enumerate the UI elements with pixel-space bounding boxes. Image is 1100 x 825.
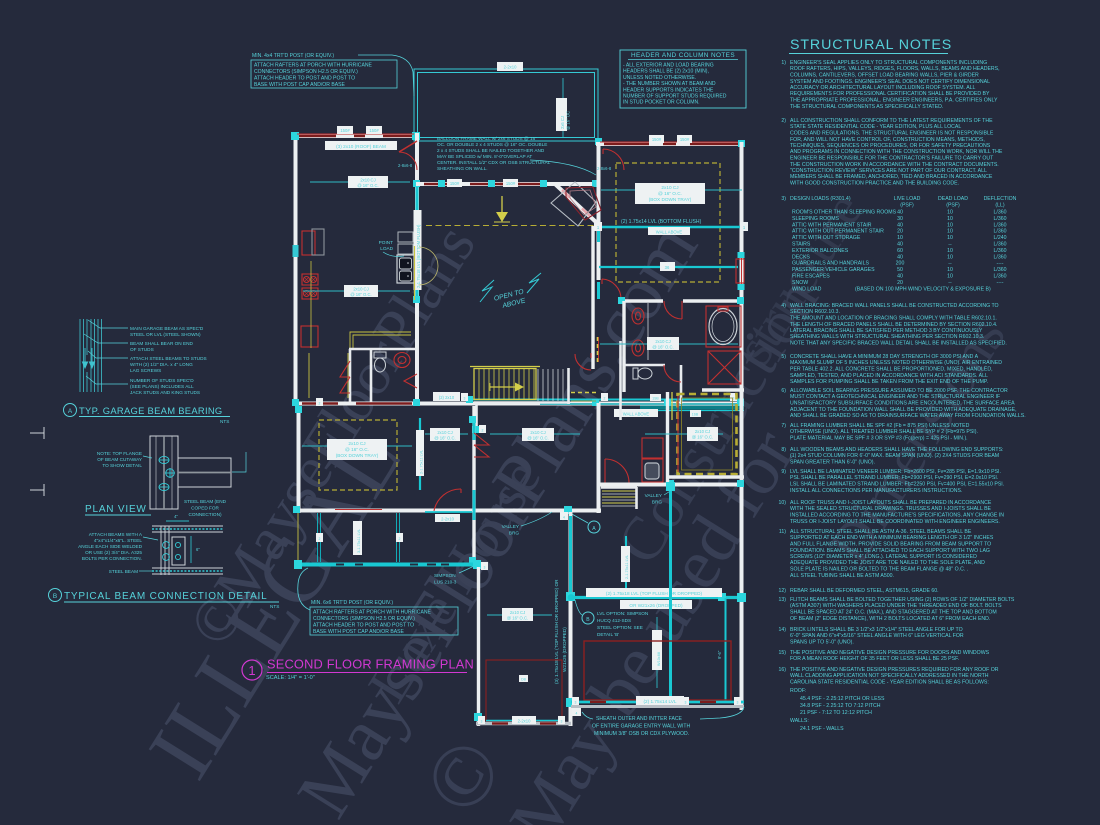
svg-text:L/360: L/360: [994, 254, 1007, 260]
svg-text:150#: 150#: [680, 137, 690, 142]
svg-text:SAMPLES FOR PUMPING SHALL BE T: SAMPLES FOR PUMPING SHALL BE TAKEN FROM …: [790, 379, 988, 385]
svg-text:15): 15): [779, 650, 787, 656]
svg-text:2): 2): [781, 118, 786, 124]
svg-text:ADJACENT TO THE FOUNDATION WAL: ADJACENT TO THE FOUNDATION WALL SHALL BE…: [790, 407, 1017, 413]
svg-text:@ 16" O.C.: @ 16" O.C.: [527, 436, 548, 441]
svg-text:THE STRUCTURAL COMPONENTS AS S: THE STRUCTURAL COMPONENTS AS SPECIFICALL…: [790, 104, 943, 110]
svg-text:STEEL BEAM (END: STEEL BEAM (END: [184, 499, 227, 504]
svg-text:ALL FRAMING LUMBER SHALL BE SP: ALL FRAMING LUMBER SHALL BE SPF #2 (Fb =…: [790, 423, 970, 429]
svg-text:2x10 CJ: 2x10 CJ: [661, 185, 678, 190]
svg-text:@ 16" O.C.: @ 16" O.C.: [434, 436, 455, 441]
svg-text:(2) 1.75x18 LVL (TOP FLUSH OR: (2) 1.75x18 LVL (TOP FLUSH OR DROPPED): [606, 591, 703, 596]
svg-text:(2) 1.75x14 LVL (BOTTOM FLUSH): (2) 1.75x14 LVL (BOTTOM FLUSH): [621, 219, 702, 225]
svg-text:14): 14): [779, 627, 787, 633]
svg-text:@ 16" O.C.: @ 16" O.C.: [692, 435, 713, 440]
svg-text:CENTER. INSTALL 1/2" CDX OR OS: CENTER. INSTALL 1/2" CDX OR OSB STRUCTUR…: [437, 160, 551, 165]
svg-text:ALLOWABLE SOIL BEARING PRESSUR: ALLOWABLE SOIL BEARING PRESSURE ASSUMED …: [790, 388, 1008, 394]
svg-text:L/360: L/360: [994, 248, 1007, 254]
svg-text:B: B: [53, 593, 57, 600]
svg-text:SCALE: 1/4" = 1'-0": SCALE: 1/4" = 1'-0": [266, 675, 315, 681]
svg-text:AND PROGRAMS IN CONNECTION WIT: AND PROGRAMS IN CONNECTION WITH THE CONS…: [790, 149, 1003, 155]
svg-text:ALL ROOF TRUSS AND I-JOIST LAY: ALL ROOF TRUSS AND I-JOIST LAYOUTS SHALL…: [790, 500, 992, 506]
svg-text:ALL STRUCTURAL STEEL SHALL BE: ALL STRUCTURAL STEEL SHALL BE ASTM A-36.…: [790, 529, 972, 535]
svg-text:2-1.75x11 LVL: 2-1.75x11 LVL: [420, 450, 424, 474]
svg-text:ATTACH RAFTERS AT PORCH WITH H: ATTACH RAFTERS AT PORCH WITH HURRICANE: [313, 610, 432, 616]
svg-text:L/360: L/360: [994, 274, 1007, 280]
svg-text:SHALL BE SPACED AT 24" O.C. (M: SHALL BE SPACED AT 24" O.C. (MAX.), AND …: [790, 610, 997, 616]
svg-text:MINIMUM 3/8" OSB OR CDX PLYWOO: MINIMUM 3/8" OSB OR CDX PLYWOOD.: [594, 731, 689, 737]
svg-text:WIND LOAD: WIND LOAD: [792, 286, 822, 292]
svg-text:45.4 PSF - 2.25:12 PITCH OR LE: 45.4 PSF - 2.25:12 PITCH OR LESS: [800, 696, 885, 702]
svg-text:ATTACH HEADER TO POST AND POST: ATTACH HEADER TO POST AND POST TO: [254, 76, 355, 82]
svg-text:SECTION R602.10.3.: SECTION R602.10.3.: [790, 309, 840, 315]
svg-text:(3) 2x10 (ROOF) BEAM: (3) 2x10 (ROOF) BEAM: [336, 144, 386, 149]
svg-text:(BASED ON 100 MPH WIND VELOCIT: (BASED ON 100 MPH WIND VELOCITY & EXPOSU…: [855, 286, 991, 292]
svg-text:2: 2: [319, 401, 321, 405]
svg-text:FLITCH BEAMS SHALL BE BOLTED T: FLITCH BEAMS SHALL BE BOLTED TOGETHER US…: [790, 597, 1015, 603]
svg-text:STATE STATE RESIDENTIAL CODE -: STATE STATE RESIDENTIAL CODE - YEAR EDIT…: [790, 124, 961, 130]
svg-text:@ 16" O.C.: @ 16" O.C.: [345, 447, 369, 452]
svg-text:BASE WITH POST CAP AND/OR BASE: BASE WITH POST CAP AND/OR BASE: [254, 82, 346, 88]
svg-text:150#: 150#: [369, 128, 379, 133]
svg-text:L/240: L/240: [994, 235, 1007, 241]
svg-text:2-2x10: 2-2x10: [518, 718, 531, 723]
svg-text:A: A: [68, 408, 73, 415]
svg-text:L/360: L/360: [994, 267, 1007, 273]
svg-text:ROOF RAFTERS, HIPS, VALLEYS, R: ROOF RAFTERS, HIPS, VALLEYS, RIDGES, FLO…: [790, 66, 1000, 72]
svg-text:VALLEY: VALLEY: [502, 524, 520, 529]
svg-text:SOLE PLATE IS NAILED OR BOLTED: SOLE PLATE IS NAILED OR BOLTED TO THE BE…: [790, 567, 968, 573]
svg-text:3-1.75x11 LVL: 3-1.75x11 LVL: [357, 529, 361, 553]
svg-text:150#: 150#: [340, 128, 350, 133]
svg-text:3: 3: [561, 719, 563, 723]
svg-text:3: 3: [575, 700, 577, 704]
svg-text:10: 10: [947, 267, 953, 273]
svg-text:ATTACH RAFTERS AT PORCH WITH H: ATTACH RAFTERS AT PORCH WITH HURRICANE: [254, 63, 373, 69]
svg-text:----: ----: [997, 261, 1004, 267]
svg-text:SHEATHING WALLS WITH STRUCTURA: SHEATHING WALLS WITH STRUCTURAL SHEATHIN…: [790, 334, 984, 340]
svg-text:24.1 PSF - WALLS: 24.1 PSF - WALLS: [800, 726, 844, 732]
svg-text:WALL BRACING: BRACED WALL PAN: WALL BRACING: BRACED WALL PANELS SHALL B…: [790, 303, 999, 309]
svg-text:MAIN GARAGE BEAM AS SPEC'D: MAIN GARAGE BEAM AS SPEC'D: [130, 326, 204, 331]
svg-text:STRUCTURAL NOTES: STRUCTURAL NOTES: [790, 37, 952, 53]
svg-text:4: 4: [563, 516, 565, 520]
svg-text:2x6 CJ: 2x6 CJ: [560, 116, 565, 129]
svg-text:SAMPLED, TESTED, AND PLACED IN: SAMPLED, TESTED, AND PLACED IN ACCORDANC…: [790, 373, 988, 379]
svg-text:THE APPROPRIATE PROFESSIONAL.: THE APPROPRIATE PROFESSIONAL. ENGINEER E…: [790, 98, 998, 104]
svg-text:2-2x10: 2-2x10: [441, 516, 454, 521]
svg-text:--: --: [948, 261, 952, 267]
svg-text:ENGINEER BE RESPONSIBLE FOR TH: ENGINEER BE RESPONSIBLE FOR THE CONTRACT…: [790, 156, 994, 162]
svg-text:DEFLECTION: DEFLECTION: [984, 196, 1017, 202]
svg-text:IN STUD POCKET OR COLUMN.: IN STUD POCKET OR COLUMN.: [623, 100, 700, 106]
svg-text:ATTIC WITH OUT PERMANENT STAIR: ATTIC WITH OUT PERMANENT STAIR: [792, 229, 884, 235]
svg-text:--: --: [948, 280, 952, 286]
svg-text:(PSF): (PSF): [900, 202, 914, 208]
svg-text:L/360: L/360: [994, 216, 1007, 222]
svg-text:ALL WOODEN BEAMS AND HEADERS S: ALL WOODEN BEAMS AND HEADERS SHALL HAVE …: [790, 447, 1004, 453]
svg-text:L/360: L/360: [994, 222, 1007, 228]
svg-text:3: 3: [685, 700, 687, 704]
svg-text:2x10 CJ: 2x10 CJ: [437, 430, 452, 435]
svg-text:2x10 CJ: 2x10 CJ: [510, 610, 525, 615]
svg-text:NOTE: TOP FLANGE: NOTE: TOP FLANGE: [97, 451, 142, 456]
svg-text:(3) 1.75x18 LVL (TOP FLUSH OR: (3) 1.75x18 LVL (TOP FLUSH OR DROPPED) O…: [554, 579, 559, 684]
svg-text:TYP. GARAGE BEAM BEARING: TYP. GARAGE BEAM BEARING: [79, 405, 223, 416]
svg-text:TYPICAL BEAM CONNECTION DETAIL: TYPICAL BEAM CONNECTION DETAIL: [64, 591, 267, 602]
svg-text:SUPPORTED AT EACH END WITH A M: SUPPORTED AT EACH END WITH A MINIMUM BEA…: [790, 535, 994, 541]
svg-text:ROOM'S OTHER THAN SLEEPING ROO: ROOM'S OTHER THAN SLEEPING ROOMS: [792, 210, 897, 216]
svg-text:- THE NUMBER SHOWN AT BEAM AND: - THE NUMBER SHOWN AT BEAM AND: [623, 81, 716, 87]
svg-text:ENGINEER'S SEAL APPLIES ONLY T: ENGINEER'S SEAL APPLIES ONLY TO STRUCTUR…: [790, 60, 987, 66]
svg-text:DECKS: DECKS: [792, 254, 810, 260]
svg-text:TRUSS OR I-JOIST LAYOUT SHALL: TRUSS OR I-JOIST LAYOUT SHALL BE COORDIN…: [790, 519, 1000, 525]
svg-text:NTS: NTS: [270, 604, 279, 609]
svg-text:@ 16" O.C.: @ 16" O.C.: [357, 183, 378, 188]
svg-text:OF ENTIRE GARAGE ENTRY WALL WI: OF ENTIRE GARAGE ENTRY WALL WITH: [592, 724, 691, 730]
svg-text:(2) 1.75x14 LVL: (2) 1.75x14 LVL: [643, 699, 676, 704]
svg-text:BRG: BRG: [509, 531, 520, 536]
svg-text:10: 10: [947, 254, 953, 260]
svg-text:(LL): (LL): [995, 202, 1004, 208]
svg-text:DEAD LOAD: DEAD LOAD: [938, 196, 968, 202]
svg-text:3: 3: [737, 700, 739, 704]
svg-text:WITH (2) 1/2" DIA. x 4" LONG: WITH (2) 1/2" DIA. x 4" LONG: [130, 362, 193, 367]
svg-text:PSL SHALL BE PARALLEL STRAND: PSL SHALL BE PARALLEL STRAND LUMBER: Fb=…: [790, 475, 998, 481]
svg-text:3): 3): [781, 196, 786, 202]
svg-text:LVL SHALL BE LAMINATED VENEER: LVL SHALL BE LAMINATED VENEER LUMBER: Fb…: [790, 469, 1001, 475]
svg-text:BOLTS PER CONNECTION.: BOLTS PER CONNECTION.: [82, 556, 142, 561]
svg-text:1): 1): [781, 60, 786, 66]
svg-text:150#: 150#: [450, 181, 460, 186]
svg-text:30: 30: [897, 216, 903, 222]
svg-text:PLAN VIEW: PLAN VIEW: [85, 504, 147, 515]
svg-text:2x10 CJ: 2x10 CJ: [360, 178, 375, 183]
svg-text:CODES AND REGULATIONS. THE STR: CODES AND REGULATIONS. THE STRUCTURAL EN…: [790, 131, 994, 137]
svg-text:HEADER AND COLUMN NOTES: HEADER AND COLUMN NOTES: [631, 52, 735, 59]
svg-text:SNOW: SNOW: [792, 280, 808, 286]
svg-text:40: 40: [897, 254, 903, 260]
svg-text:@ 16" O.C.: @ 16" O.C.: [652, 345, 673, 350]
svg-text:ATTACH HEADER TO POST AND POST: ATTACH HEADER TO POST AND POST TO: [313, 623, 414, 629]
svg-text:10): 10): [779, 500, 787, 506]
svg-text:LSL SHALL BE LAMINATED STRAND: LSL SHALL BE LAMINATED STRAND LUMBER: Fb…: [790, 482, 1004, 488]
svg-text:4: 4: [576, 711, 578, 715]
svg-text:MAXIMUM SLUMP OF 5 INCHES UNLE: MAXIMUM SLUMP OF 5 INCHES UNLESS NOTED O…: [790, 360, 1002, 366]
svg-text:OF BEAM (2" EDGE DISTANCE), WI: OF BEAM (2" EDGE DISTANCE), WITH 2 BOLTS…: [790, 616, 990, 622]
svg-text:SECOND FLOOR FRAMING PLAN: SECOND FLOOR FRAMING PLAN: [267, 657, 474, 672]
svg-text:NTS: NTS: [220, 419, 229, 424]
svg-text:1SB: 1SB: [652, 397, 659, 401]
svg-text:OTHERWISE (UNO). ALL TREATED L: OTHERWISE (UNO). ALL TREATED LUMBER SHAL…: [790, 429, 978, 435]
svg-text:(BOX DOWN TRAY): (BOX DOWN TRAY): [336, 453, 379, 458]
svg-text:2x10 CJ: 2x10 CJ: [655, 339, 670, 344]
svg-text:2: 2: [319, 537, 321, 541]
svg-text:1SB: 1SB: [692, 413, 699, 417]
svg-text:2 x 4 STUDS SHALL BE NAILED TO: 2 x 4 STUDS SHALL BE NAILED TOGETHER AND: [437, 148, 545, 153]
svg-text:11): 11): [779, 529, 786, 535]
svg-text:2x10 CJ: 2x10 CJ: [348, 441, 365, 446]
svg-text:MAY BE SPLICED w/ MIN. 8'-0"OV: MAY BE SPLICED w/ MIN. 8'-0"OVERLAP AT: [437, 154, 532, 159]
svg-text:2x10 CJ: 2x10 CJ: [695, 429, 710, 434]
svg-text:MUST CONTACT A GEOTECHNICAL EN: MUST CONTACT A GEOTECHNICAL ENGINEER AND…: [790, 394, 1000, 400]
svg-text:4"x4"x1/4"x6"L. STEEL: 4"x4"x1/4"x6"L. STEEL: [94, 538, 142, 543]
svg-text:(PSF): (PSF): [946, 202, 960, 208]
svg-text:@ 16" OC: @ 16" OC: [566, 111, 571, 130]
svg-text:THE POSITIVE AND NEGATIVE DESI: THE POSITIVE AND NEGATIVE DESIGN PRESSUR…: [790, 650, 990, 656]
svg-text:7): 7): [781, 423, 786, 429]
svg-text:MEMBERS SHALL BE FRAMED, ANCHO: MEMBERS SHALL BE FRAMED, ANCHORED, TIED …: [790, 174, 993, 180]
svg-text:STEEL OR LVL (STEEL SHOWN): STEEL OR LVL (STEEL SHOWN): [130, 332, 201, 337]
svg-text:2x10 CJ: 2x10 CJ: [353, 287, 368, 292]
svg-text:BASE WITH POST CAP AND/OR BASE: BASE WITH POST CAP AND/OR BASE: [313, 629, 405, 635]
svg-text:ADEQUATE PROVIDED THE JOIST AR: ADEQUATE PROVIDED THE JOIST ARE TOE NAIL…: [790, 560, 985, 566]
svg-text:(1) 2x4 STUD COLUMN FOR 6'-0": (1) 2x4 STUD COLUMN FOR 6'-0" MAX. BEAM …: [790, 453, 999, 459]
svg-text:WITH GOOD CONSTRUCTION PRACTIC: WITH GOOD CONSTRUCTION PRACTICE AND THE …: [790, 181, 959, 187]
svg-text:SCREWS (1/2" DIAMETER x 4" LON: SCREWS (1/2" DIAMETER x 4" LONG.). LATER…: [790, 554, 977, 560]
svg-text:----: ----: [997, 280, 1004, 286]
svg-text:DB: DB: [521, 678, 526, 682]
svg-text:2: 2: [399, 537, 401, 541]
svg-text:STEEL OPTION: SEE: STEEL OPTION: SEE: [597, 625, 643, 630]
svg-text:3: 3: [484, 565, 486, 569]
svg-text:2-8x6-8: 2-8x6-8: [398, 163, 413, 168]
svg-text:FOR A MEAN ROOF HEIGHT OF 35 F: FOR A MEAN ROOF HEIGHT OF 35 FEET OR LES…: [790, 656, 959, 662]
svg-text:OC. OR DOUBLE 2 x 4 STUDS @ 16: OC. OR DOUBLE 2 x 4 STUDS @ 16" OC. DOUB…: [437, 142, 547, 147]
svg-text:AND FULL FLANGE WIDTH. PROVIDE: AND FULL FLANGE WIDTH. PROVIDE SOLID BEA…: [790, 542, 991, 548]
svg-text:CONNECTION): CONNECTION): [188, 512, 222, 517]
svg-text:MIN. 6x6 TRT'D POST (OR EQUIV.: MIN. 6x6 TRT'D POST (OR EQUIV.): [311, 600, 393, 606]
svg-text:10: 10: [947, 274, 953, 280]
svg-text:B: B: [586, 617, 590, 623]
svg-text:UNLESS NOTED OTHERWISE.: UNLESS NOTED OTHERWISE.: [623, 75, 696, 81]
svg-text:WALL CLADDING APPLICATION NOT: WALL CLADDING APPLICATION NOT SPECIFICAL…: [790, 673, 989, 679]
svg-text:ACCURACY OR ARCHITECTURAL LAYO: ACCURACY OR ARCHITECTURAL LAYOUT INCLUDI…: [790, 85, 976, 91]
svg-text:BRG: BRG: [652, 500, 663, 505]
svg-text:4": 4": [174, 514, 178, 519]
svg-text:HUCQ 412-SDS: HUCQ 412-SDS: [597, 618, 631, 623]
svg-text:200: 200: [896, 261, 905, 267]
svg-text:40: 40: [897, 210, 903, 216]
svg-text:5): 5): [781, 354, 786, 360]
svg-text:PLATE MATERIAL MAY BE SPF # 3: PLATE MATERIAL MAY BE SPF # 3 OR SYP #3 …: [790, 436, 968, 442]
svg-text:POINT: POINT: [379, 240, 393, 245]
svg-text:SYSTEM AND FOOTINGS. ENGINEER: SYSTEM AND FOOTINGS. ENGINEER'S SEAL DOE…: [790, 79, 990, 85]
svg-text:JACK STUDS AND KING STUDS: JACK STUDS AND KING STUDS: [130, 390, 200, 395]
svg-text:ALL STEEL TUBING SHALL BE ASTM: ALL STEEL TUBING SHALL BE ASTM A500.: [790, 573, 894, 579]
svg-text:INSTALL ALL CONNECTIONS PER MA: INSTALL ALL CONNECTIONS PER MANUFACTURER…: [790, 488, 962, 494]
svg-text:STEEL BEAM: STEEL BEAM: [109, 569, 138, 574]
svg-text:AND SHALL BE GRADED SO AS TO D: AND SHALL BE GRADED SO AS TO DRAINSURFAC…: [790, 413, 1026, 419]
svg-text:9): 9): [781, 469, 786, 475]
svg-text:1: 1: [248, 663, 255, 678]
svg-text:WALL ABOVE: WALL ABOVE: [656, 230, 683, 235]
svg-text:6): 6): [781, 388, 786, 394]
svg-text:LIVE LOAD: LIVE LOAD: [894, 196, 921, 202]
svg-text:10: 10: [947, 235, 953, 241]
svg-text:L/360: L/360: [994, 210, 1007, 216]
svg-text:60: 60: [897, 248, 903, 254]
svg-text:EXTERIOR BALCONES: EXTERIOR BALCONES: [792, 248, 849, 254]
svg-text:REQUIREMENTS FOR PROFESSIONAL: REQUIREMENTS FOR PROFESSIONAL CERTIFICAT…: [790, 91, 990, 97]
svg-text:20: 20: [897, 229, 903, 235]
svg-text:BRICK LINTELS SHALL BE 3 1/2"x: BRICK LINTELS SHALL BE 3 1/2"x3 1/2"x1/4…: [790, 627, 963, 633]
svg-text:LAG SCREWS: LAG SCREWS: [130, 368, 161, 373]
svg-text:20: 20: [897, 280, 903, 286]
svg-text:A: A: [592, 526, 596, 532]
svg-text:LUS 210-3: LUS 210-3: [434, 580, 457, 585]
svg-text:DESIGN LOADS (R301.4): DESIGN LOADS (R301.4): [790, 196, 851, 202]
svg-text:NOTE THAT ANY SPECIFIC BRACED: NOTE THAT ANY SPECIFIC BRACED WALL DETAI…: [790, 341, 1007, 347]
svg-text:2-2x10: 2-2x10: [504, 65, 517, 70]
svg-text:50: 50: [897, 267, 903, 273]
svg-text:HEADER SUPPORTS INDICATES THE: HEADER SUPPORTS INDICATES THE: [623, 87, 714, 93]
svg-text:MIN. 4x4 TRT'D POST (OR EQUIV.: MIN. 4x4 TRT'D POST (OR EQUIV.): [252, 53, 334, 59]
svg-text:NUMBER OF SUPPORT STUDS REQUIR: NUMBER OF SUPPORT STUDS REQUIRED: [623, 94, 727, 100]
svg-text:(2) 2x10: (2) 2x10: [439, 395, 455, 400]
svg-text:150#: 150#: [506, 181, 516, 186]
svg-text:SPAN GREATER THAN 6'-0" (UNO).: SPAN GREATER THAN 6'-0" (UNO).: [790, 460, 875, 466]
svg-text:@ 16" O.C.: @ 16" O.C.: [658, 191, 682, 196]
svg-text:LOAD: LOAD: [380, 246, 393, 251]
svg-text:ATTIC WITH OUT STORAGE: ATTIC WITH OUT STORAGE: [792, 235, 861, 241]
svg-text:10: 10: [947, 229, 953, 235]
svg-text:3: 3: [481, 719, 483, 723]
svg-text:9'-6": 9'-6": [717, 650, 722, 659]
svg-text:SHEATH OUTER AND INTTER FACE: SHEATH OUTER AND INTTER FACE: [596, 716, 683, 722]
svg-text:ALL CONSTRUCTION SHALL CONFORM: ALL CONSTRUCTION SHALL CONFORM TO THE LA…: [790, 118, 993, 124]
svg-text:PASSENGER VEHICLE GARAGES: PASSENGER VEHICLE GARAGES: [792, 267, 875, 273]
svg-text:VALLEY: VALLEY: [645, 493, 663, 498]
svg-text:UNSATISFACTORY SUBSURFACE COND: UNSATISFACTORY SUBSURFACE CONDITIONS ARE…: [790, 401, 1015, 407]
svg-text:10: 10: [947, 248, 953, 254]
svg-text:150#: 150#: [652, 137, 662, 142]
svg-text:36: 36: [665, 265, 670, 270]
svg-text:L/360: L/360: [994, 229, 1007, 235]
svg-text:PER TABLE 402.2. ALL CONCRETE: PER TABLE 402.2. ALL CONCRETE SHALL BE P…: [790, 367, 993, 373]
svg-text:12): 12): [779, 588, 787, 594]
svg-text:6'-0" SPAN AND 6"x4"x5/16" STE: 6'-0" SPAN AND 6"x4"x5/16" STEEL ANGLE W…: [790, 633, 964, 639]
svg-text:TO SHOW DETAIL: TO SHOW DETAIL: [102, 463, 142, 468]
svg-text:ROOF:: ROOF:: [790, 688, 806, 694]
svg-text:6": 6": [196, 547, 200, 552]
svg-text:40: 40: [897, 274, 903, 280]
svg-text:THE POSITIVE AND NEGATIVE DESI: THE POSITIVE AND NEGATIVE DESIGN PRESSUR…: [790, 667, 999, 673]
svg-text:OR W21x26 (DROPPED): OR W21x26 (DROPPED): [629, 603, 683, 608]
svg-text:THE CONSTRUCTION WORK IN ACCOR: THE CONSTRUCTION WORK IN ACCORDANCE WITH…: [790, 162, 999, 168]
svg-text:NUMBER OF STUDS SPEC'D: NUMBER OF STUDS SPEC'D: [130, 378, 194, 383]
svg-text:WALLS:: WALLS:: [790, 718, 809, 724]
svg-text:--: --: [948, 242, 952, 248]
svg-text:ATTIC WITH PERMANENT STAIR: ATTIC WITH PERMANENT STAIR: [792, 222, 872, 228]
svg-text:SIMPSON: SIMPSON: [434, 573, 456, 578]
svg-text:(BOX DOWN TRAY): (BOX DOWN TRAY): [649, 197, 692, 202]
svg-text:2: 2: [482, 428, 484, 432]
svg-text:TECHNIQUES, SEQUENCES OR PROCE: TECHNIQUES, SEQUENCES OR PROCEDURES, OR …: [790, 143, 991, 149]
svg-text:4): 4): [781, 303, 786, 309]
svg-text:BEAM SHALL BEAR ON END: BEAM SHALL BEAR ON END: [130, 341, 193, 346]
svg-text:DETAIL 'B': DETAIL 'B': [597, 632, 619, 637]
svg-text:INSTALLED ACCORDING TO THE MAN: INSTALLED ACCORDING TO THE MANUFACTURE'S…: [790, 513, 1004, 519]
svg-text:FOR, AND WILL NOT HAVE CONTROL: FOR, AND WILL NOT HAVE CONTROL OF, CONST…: [790, 137, 985, 143]
svg-text:FOUNDATION. BEAMS SHALL BE AT: FOUNDATION. BEAMS SHALL BE ATTACHED TO E…: [790, 548, 990, 554]
svg-text:WALL ABOVE: WALL ABOVE: [623, 411, 650, 416]
svg-text:(SEE PLANS) INCLUDES ALL: (SEE PLANS) INCLUDES ALL: [130, 384, 194, 389]
svg-text:@ 16" O.C.: @ 16" O.C.: [350, 292, 371, 297]
svg-text:10: 10: [947, 222, 953, 228]
svg-text:REBAR SHALL BE DEFORMED STEEL,: REBAR SHALL BE DEFORMED STEEL, ASTM615, …: [790, 588, 939, 594]
svg-text:COLUMNS, CANTILEVERS, OFFSET L: COLUMNS, CANTILEVERS, OFFSET LOAD BEARIN…: [790, 73, 979, 79]
svg-text:W10x68: W10x68: [657, 652, 661, 666]
svg-text:CAROLINA STATE RESIDENTIAL COD: CAROLINA STATE RESIDENTIAL CODE - YEAR E…: [790, 680, 989, 686]
svg-text:SPANS UP TO 5'-0" (UNO).: SPANS UP TO 5'-0" (UNO).: [790, 640, 854, 646]
svg-text:CONNECTORS (SIMPSON H2.5 OR EQ: CONNECTORS (SIMPSON H2.5 OR EQUIV.): [313, 616, 415, 622]
svg-text:10: 10: [947, 210, 953, 216]
svg-text:ANGLE EACH SIDE WELDED: ANGLE EACH SIDE WELDED: [78, 544, 142, 549]
svg-text:16): 16): [779, 667, 787, 673]
svg-text:W21x26 (DROPPED): W21x26 (DROPPED): [562, 627, 567, 672]
svg-text:SHEATHING ON WALL.: SHEATHING ON WALL.: [437, 166, 488, 171]
svg-text:LVL OPTION: SIMPSON: LVL OPTION: SIMPSON: [597, 611, 648, 616]
svg-text:GUARDRAILS AND HANDRAILS: GUARDRAILS AND HANDRAILS: [792, 261, 870, 267]
svg-text:L/360: L/360: [994, 242, 1007, 248]
svg-text:LATERAL BRACING SHALL BE SATIS: LATERAL BRACING SHALL BE SATISFIED PER M…: [790, 328, 983, 334]
svg-text:21 PSF - 7:12 TO 12:12 PITCH: 21 PSF - 7:12 TO 12:12 PITCH: [800, 710, 872, 716]
svg-text:40: 40: [897, 222, 903, 228]
svg-text:8): 8): [781, 447, 786, 453]
svg-text:OF STUDS: OF STUDS: [130, 347, 154, 352]
svg-text:2-8x6-8: 2-8x6-8: [597, 166, 612, 171]
svg-text:13): 13): [779, 597, 787, 603]
svg-text:SLEEPING ROOMS: SLEEPING ROOMS: [792, 216, 840, 222]
svg-text:2: 2: [604, 396, 606, 400]
svg-text:THE LENGTH OF BRACED PANELS SH: THE LENGTH OF BRACED PANELS SHALL BE DET…: [790, 322, 997, 328]
svg-text:(ASTM A307) WITH WASHERS PLACE: (ASTM A307) WITH WASHERS PLACED UNDER TH…: [790, 603, 1002, 609]
svg-text:10: 10: [947, 216, 953, 222]
svg-text:2-1.75x11 LVL: 2-1.75x11 LVL: [625, 555, 629, 579]
svg-text:STAIRS: STAIRS: [792, 242, 811, 248]
svg-text:COPED FOR: COPED FOR: [191, 506, 219, 511]
svg-text:ATTACH STEEL BEAMS TO STUDS: ATTACH STEEL BEAMS TO STUDS: [130, 356, 207, 361]
svg-text:40: 40: [897, 242, 903, 248]
svg-text:THE AMOUNT AND LOCATION OF BRA: THE AMOUNT AND LOCATION OF BRACING SHALL…: [790, 316, 997, 322]
svg-text:2x10 CJ: 2x10 CJ: [530, 430, 545, 435]
svg-text:WITH THE SEALED STRUCTURAL DRA: WITH THE SEALED STRUCTURAL DRAWINGS. TRU…: [790, 506, 992, 512]
svg-text:OR USE (2) 3/4" DIA. A325: OR USE (2) 3/4" DIA. A325: [85, 550, 142, 555]
svg-text:CONCRETE SHALL HAVE A MINIMUM: CONCRETE SHALL HAVE A MINIMUM 28 DAY STR…: [790, 354, 979, 360]
svg-text:34.8 PSF - 2.25:12 TO 7:12 PIT: 34.8 PSF - 2.25:12 TO 7:12 PITCH: [800, 703, 881, 709]
svg-text:- ALL EXTERIOR AND LOAD BEARIN: - ALL EXTERIOR AND LOAD BEARING: [623, 63, 714, 69]
svg-text:2-1.75x18 LVL (BOTTOM FLUSH): 2-1.75x18 LVL (BOTTOM FLUSH): [416, 224, 421, 288]
svg-text:HEADERS SHALL BE (2) 2x10 (MIN: HEADERS SHALL BE (2) 2x10 (MIN),: [623, 69, 709, 75]
svg-text:10: 10: [897, 235, 903, 241]
svg-text:OF BEAM CUTAWAY: OF BEAM CUTAWAY: [97, 457, 143, 462]
svg-text:@ 16" O.C.: @ 16" O.C.: [507, 616, 528, 621]
svg-text:FIRE ESCAPES: FIRE ESCAPES: [792, 274, 830, 280]
svg-text:"CONSTRUCTION REVIEW" SERVICES: "CONSTRUCTION REVIEW" SERVICES ARE NOT P…: [790, 168, 987, 174]
svg-text:ATTACH BEAMS WITH A: ATTACH BEAMS WITH A: [89, 532, 143, 537]
svg-text:CONNECTORS (SIMPSON H2.5 OR EQ: CONNECTORS (SIMPSON H2.5 OR EQUIV.): [254, 69, 358, 75]
svg-text:3: 3: [464, 396, 466, 400]
svg-text:BALLOON FRAME WALL w/ 2x6 STUD: BALLOON FRAME WALL w/ 2x6 STUDS @ 16": [437, 136, 537, 141]
